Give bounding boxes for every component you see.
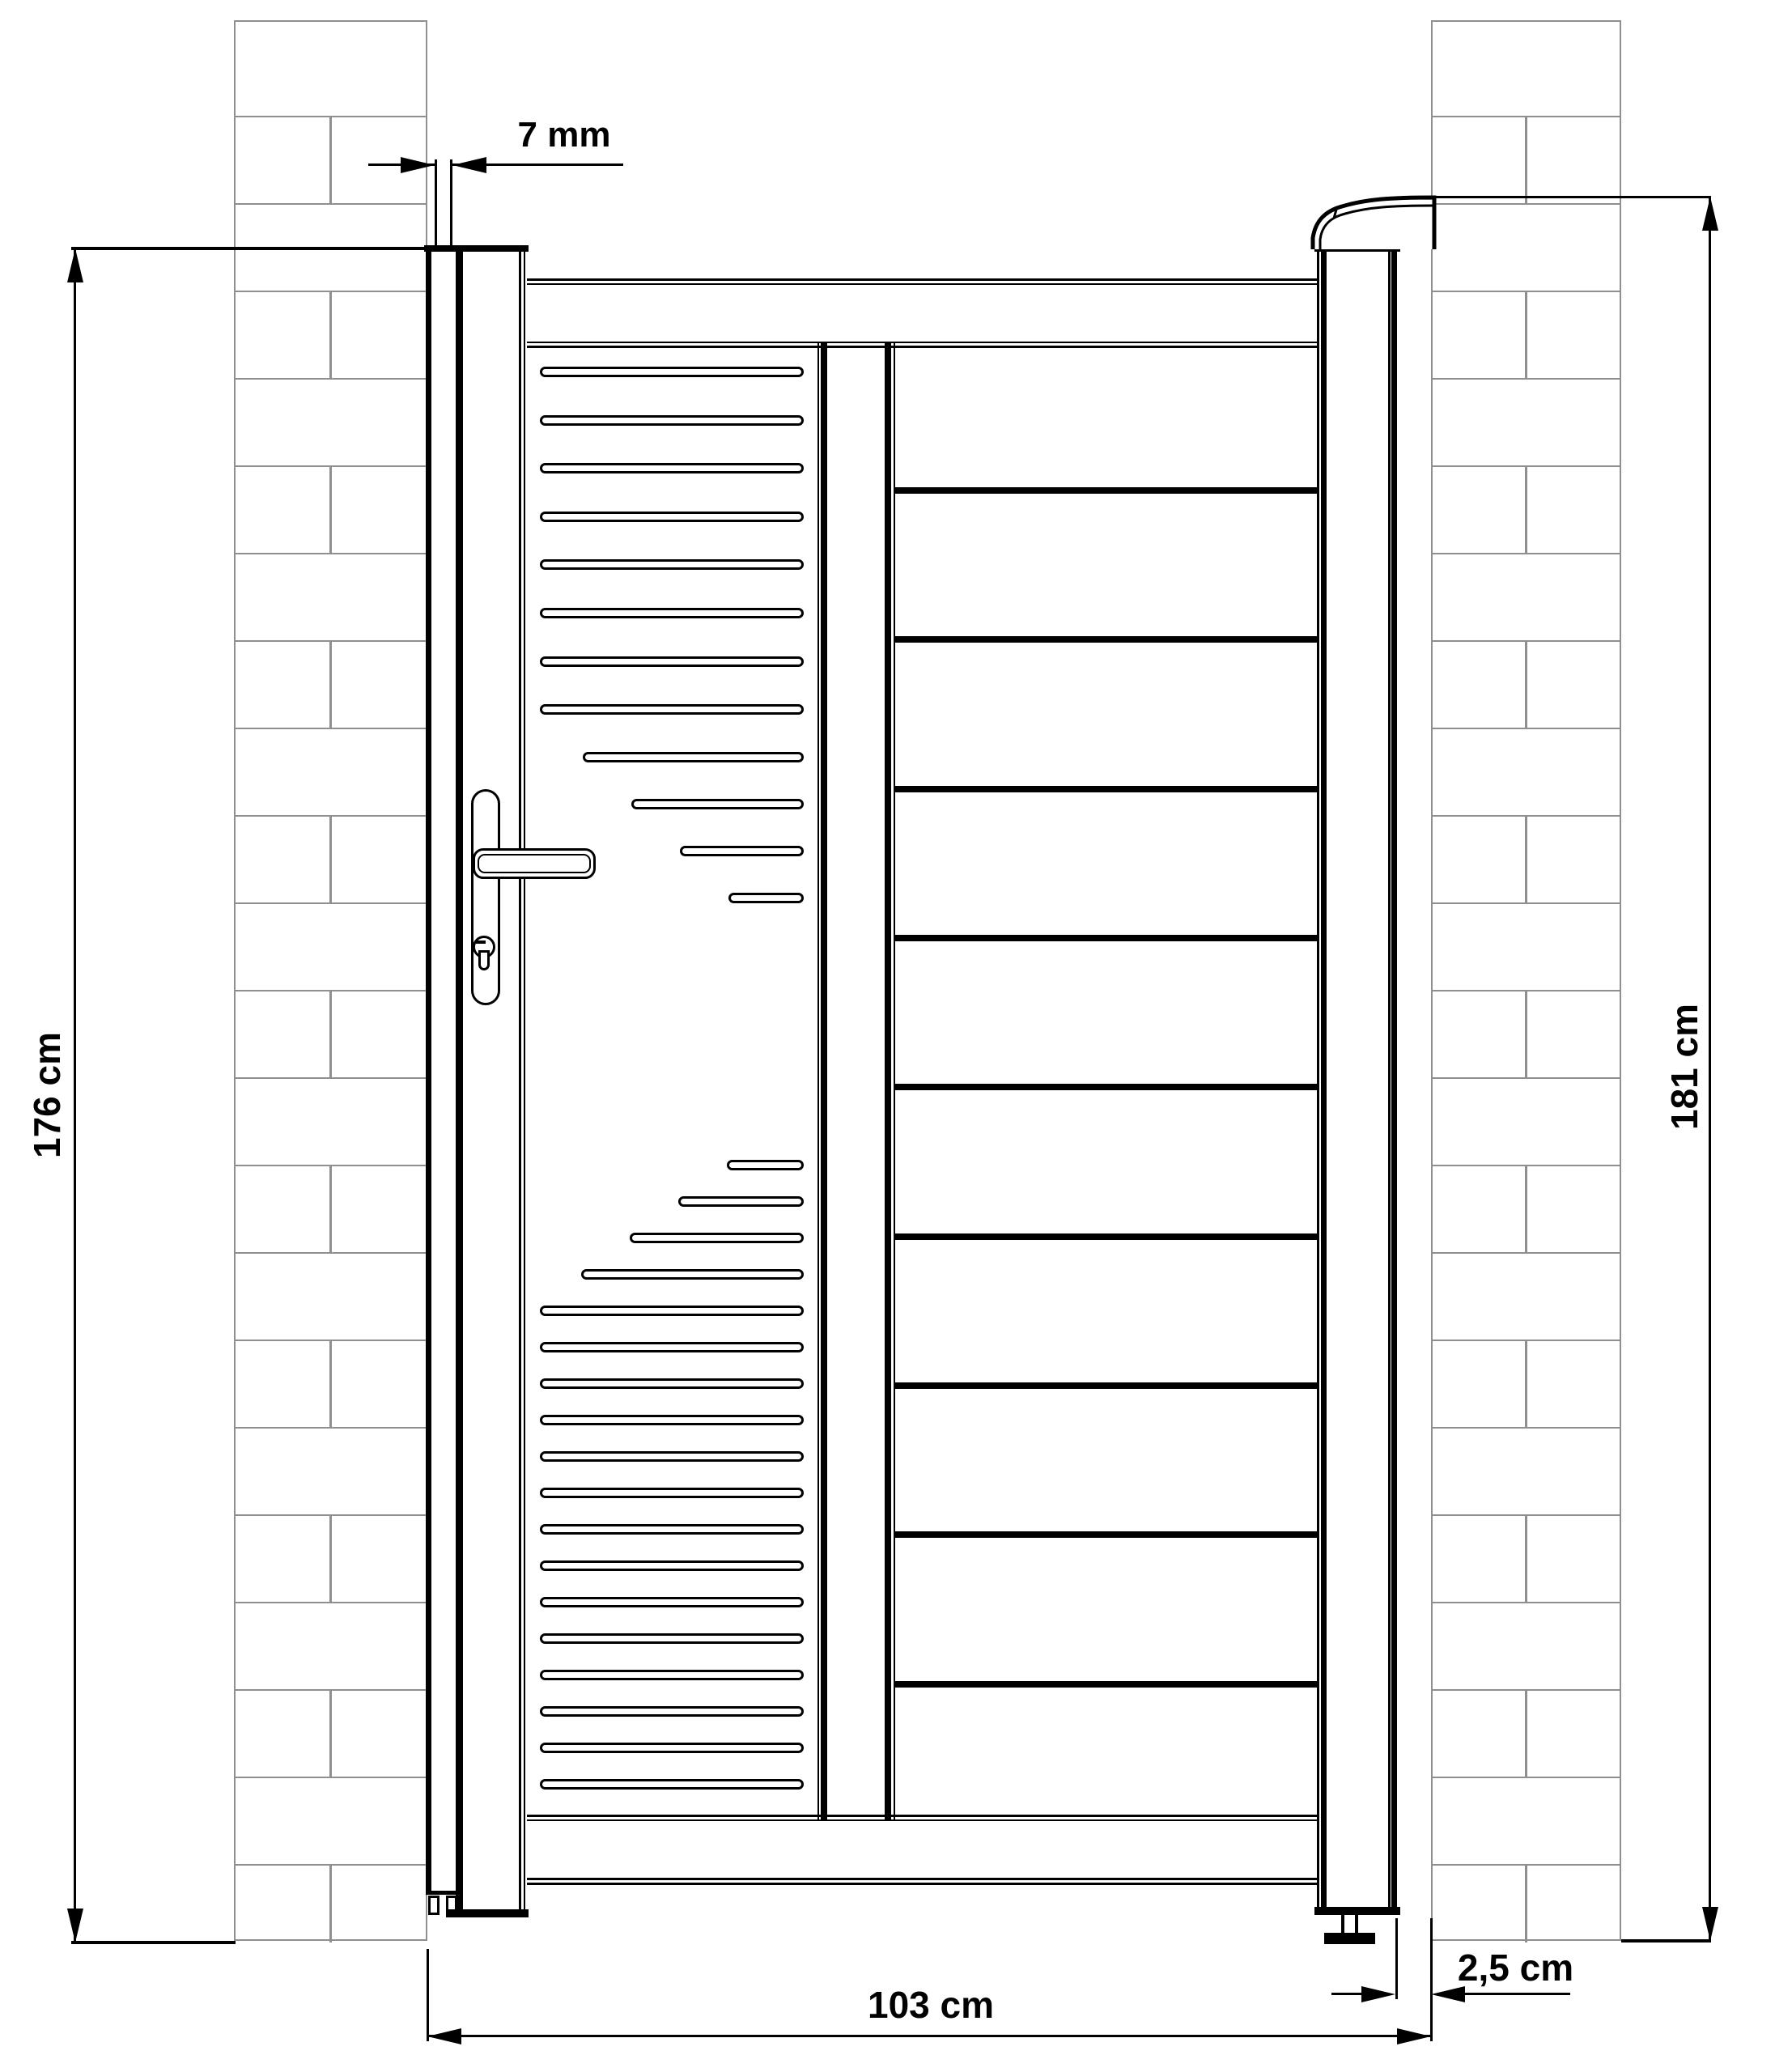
louvre-slat	[540, 1743, 804, 1753]
brick-joint	[1525, 1166, 1527, 1252]
brick-joint	[1525, 1866, 1527, 1942]
brick-row	[236, 292, 426, 380]
brick-row	[236, 1166, 426, 1254]
brick-row	[1433, 642, 1620, 729]
brick-row	[236, 22, 426, 117]
brick-joint	[329, 991, 332, 1077]
brick-row	[236, 1866, 426, 1942]
plank-separator	[894, 1531, 1319, 1538]
louvre-slat	[540, 1560, 804, 1571]
brick-row	[1433, 1079, 1620, 1166]
top-rail-line	[527, 283, 1319, 285]
dim-181-line	[1709, 197, 1711, 1941]
latch-post-line	[1391, 248, 1397, 1908]
louvre-slat	[540, 415, 804, 426]
lever-handle-inner-line	[478, 854, 591, 873]
louvre-slat	[540, 1779, 804, 1790]
brick-row	[236, 904, 426, 991]
latch-post-curved-cap	[1310, 191, 1437, 251]
divider-line	[894, 342, 895, 1821]
brick-row	[236, 1603, 426, 1691]
brick-row	[236, 1079, 426, 1166]
louvre-slat	[540, 1415, 804, 1425]
dim-arrow	[1702, 1907, 1718, 1941]
brick-row	[236, 380, 426, 467]
divider-line	[817, 342, 819, 1821]
dim-25-line-right	[1465, 1993, 1570, 1995]
dim-label-pin-gap: 7 mm	[503, 113, 625, 157]
brick-row	[1433, 1341, 1620, 1429]
louvre-slat	[678, 1196, 804, 1207]
brick-row	[236, 1254, 426, 1341]
brick-row	[1433, 1254, 1620, 1341]
hinge-post-left-edge	[426, 248, 431, 1894]
louvre-slat	[540, 1670, 804, 1680]
plank-separator	[894, 935, 1319, 941]
brick-row	[1433, 991, 1620, 1079]
brick-joint	[1525, 467, 1527, 553]
louvre-slat	[540, 1633, 804, 1644]
dim-label-height-right: 181 cm	[1662, 978, 1706, 1156]
brick-joint	[329, 1866, 332, 1942]
brick-row	[1433, 1603, 1620, 1691]
dim-arrow	[1361, 1986, 1395, 2002]
brick-row	[236, 991, 426, 1079]
brick-joint	[329, 642, 332, 728]
brick-row	[236, 1778, 426, 1866]
brick-row	[1433, 1166, 1620, 1254]
brick-row	[236, 1341, 426, 1429]
hinge-post-stile-edge	[456, 248, 463, 1912]
bottom-rail-line	[527, 1819, 1319, 1821]
louvre-slat	[581, 1269, 804, 1280]
dim-arrow	[67, 1909, 83, 1942]
brick-row	[1433, 292, 1620, 380]
louvre-slat	[727, 1160, 804, 1170]
louvre-slat	[540, 1488, 804, 1498]
brick-row	[236, 1429, 426, 1516]
brick-row	[1433, 1516, 1620, 1603]
louvre-slat	[540, 608, 804, 618]
brick-row	[1433, 205, 1620, 292]
brick-joint	[329, 1341, 332, 1427]
louvre-slat	[540, 1706, 804, 1717]
louvre-slat	[728, 893, 804, 903]
brick-row	[1433, 1429, 1620, 1516]
brick-wall-left	[234, 20, 427, 1941]
louvre-slat	[540, 1306, 804, 1316]
brick-row	[1433, 117, 1620, 205]
dim-25-line-left	[1331, 1993, 1362, 1995]
brick-joint	[1525, 292, 1527, 378]
euro-cylinder-body	[478, 950, 490, 970]
brick-row	[236, 817, 426, 904]
brick-joint	[329, 292, 332, 378]
dim-176-line	[74, 248, 76, 1942]
latch-post-bottom-cap	[1314, 1907, 1400, 1915]
hinge-foot	[428, 1896, 440, 1915]
brick-joint	[1525, 642, 1527, 728]
dim-25-ext	[1395, 1918, 1398, 1999]
brick-row	[1433, 1778, 1620, 1866]
louvre-slat	[540, 1378, 804, 1389]
dim-arrow	[427, 2028, 461, 2044]
bottom-rail-line	[527, 1883, 1319, 1885]
dim-label-opening-width: 103 cm	[838, 1983, 1024, 2027]
louvre-slat	[540, 1524, 804, 1535]
brick-joint	[329, 1516, 332, 1602]
brick-joint	[329, 1166, 332, 1252]
post-top-cap-left	[424, 245, 529, 252]
dim-label-height-left: 176 cm	[25, 1006, 69, 1184]
left-stile-bottom-cap	[446, 1909, 529, 1917]
brick-row	[1433, 1866, 1620, 1942]
dim-arrow	[401, 157, 435, 173]
louvre-slat	[540, 704, 804, 715]
brick-joint	[1525, 1341, 1527, 1427]
adjustable-foot-stem	[1355, 1915, 1358, 1934]
dim-103-ext-right	[1430, 1918, 1433, 2041]
left-stile-inner-line	[519, 248, 521, 1912]
brick-row	[1433, 380, 1620, 467]
louvre-slat	[540, 463, 804, 473]
brick-row	[236, 1516, 426, 1603]
plank-separator	[894, 636, 1319, 643]
dim-arrow	[1397, 2028, 1431, 2044]
dim-arrow	[67, 248, 83, 282]
hinge-pin-left-line	[435, 159, 437, 248]
dim-181-ext-top	[1433, 196, 1711, 198]
dim-label-side-gap: 2,5 cm	[1437, 1946, 1595, 1989]
brick-joint	[1525, 991, 1527, 1077]
brick-row	[236, 554, 426, 642]
louvre-slat	[540, 367, 804, 377]
louvre-slat	[680, 846, 804, 856]
louvre-slat	[540, 656, 804, 667]
brick-row	[236, 467, 426, 554]
gate-technical-drawing: 7 mm 176 cm 181 cm 103 cm 2,5 cm	[0, 0, 1775, 2072]
adjustable-foot-stem	[1341, 1915, 1344, 1934]
top-rail-line	[527, 342, 1319, 344]
louvre-slat	[631, 799, 804, 809]
divider-line	[885, 342, 891, 1821]
louvre-slat	[630, 1233, 804, 1243]
latch-post-line	[1388, 248, 1391, 1908]
brick-joint	[329, 817, 332, 902]
plank-separator	[894, 786, 1319, 792]
brick-row	[236, 117, 426, 205]
left-stile-inner-line	[524, 248, 526, 1912]
brick-wall-right	[1431, 20, 1621, 1941]
plank-separator	[894, 1233, 1319, 1240]
latch-post-line	[1321, 248, 1327, 1908]
plank-separator	[894, 1681, 1319, 1688]
dim-arrow	[1702, 197, 1718, 231]
dim-181-ext-bottom	[1621, 1939, 1711, 1942]
lock-escutcheon-plate	[471, 789, 500, 1005]
louvre-slat	[540, 1451, 804, 1462]
louvre-slat	[540, 559, 804, 570]
bottom-rail-line	[527, 1878, 1319, 1880]
latch-post-line	[1317, 248, 1319, 1908]
plank-separator	[894, 1084, 1319, 1090]
dim-176-ext-bottom	[71, 1941, 236, 1944]
louvre-slat	[540, 512, 804, 522]
top-rail-line	[527, 346, 1319, 348]
brick-joint	[329, 467, 332, 553]
brick-joint	[1525, 1516, 1527, 1602]
brick-joint	[329, 1691, 332, 1777]
louvre-slat	[540, 1342, 804, 1352]
brick-row	[1433, 22, 1620, 117]
brick-joint	[1525, 817, 1527, 902]
top-rail-line	[527, 278, 1319, 281]
keyhole-slot	[476, 940, 486, 944]
brick-row	[236, 642, 426, 729]
hinge-post-bottom	[426, 1891, 463, 1895]
brick-row	[236, 729, 426, 817]
brick-joint	[1525, 117, 1527, 203]
dim-176-ext-top	[71, 247, 429, 250]
dim-7mm-line-right	[452, 163, 623, 166]
brick-row	[1433, 554, 1620, 642]
hinge-pin-right-line	[450, 159, 452, 248]
brick-row	[1433, 904, 1620, 991]
louvre-slat	[540, 1597, 804, 1607]
dim-103-line	[427, 2035, 1431, 2037]
louvre-slat	[583, 752, 804, 762]
plank-separator	[894, 1382, 1319, 1389]
brick-row	[1433, 1691, 1620, 1778]
brick-row	[1433, 729, 1620, 817]
brick-row	[1433, 817, 1620, 904]
brick-joint	[329, 117, 332, 203]
brick-joint	[1525, 1691, 1527, 1777]
brick-row	[1433, 467, 1620, 554]
adjustable-foot-plate	[1324, 1933, 1375, 1944]
bottom-rail-line	[527, 1815, 1319, 1817]
divider-line	[821, 342, 827, 1821]
brick-row	[236, 1691, 426, 1778]
plank-separator	[894, 487, 1319, 494]
